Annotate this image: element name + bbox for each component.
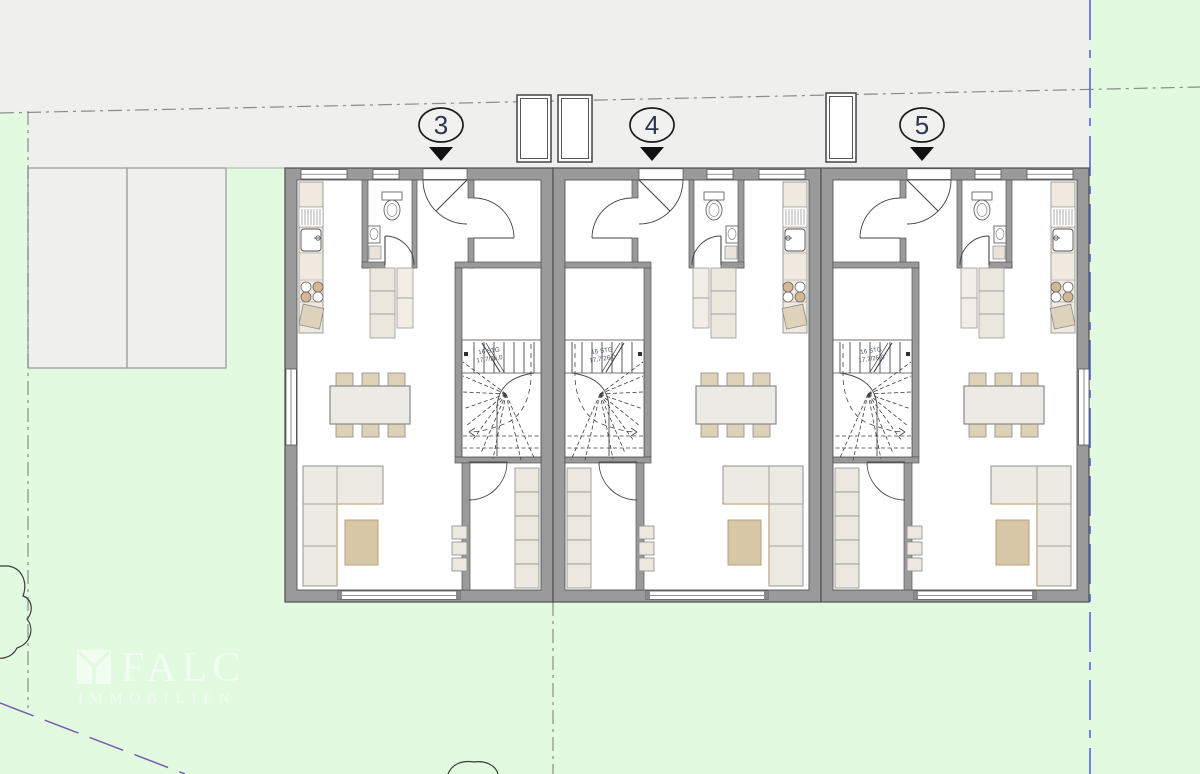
- unit-5-floorplan: [821, 168, 1089, 602]
- unit-3-side-window: [286, 369, 296, 445]
- parking-space-1: [28, 168, 127, 368]
- canopy-2: [558, 95, 592, 162]
- watermark-brand: FALC: [121, 645, 245, 691]
- floor-plan-canvas: 16 STG 17,7/26,0 16 STG 17,7/26,0 16 STG…: [0, 0, 1200, 774]
- unit-number: 3: [434, 110, 448, 140]
- site-plan-page: 16 STG 17,7/26,0 16 STG 17,7/26,0 16 STG…: [0, 0, 1200, 774]
- parking-space-2: [127, 168, 226, 368]
- unit-3-floorplan: [285, 168, 553, 602]
- canopy-1: [517, 95, 551, 162]
- unit-number: 4: [645, 110, 659, 140]
- unit-number: 5: [915, 110, 929, 140]
- watermark-subtitle: IMMOBILIEN: [78, 691, 237, 707]
- unit-4-floorplan: [553, 168, 821, 602]
- falc-logo-icon: [77, 650, 111, 684]
- watermark: FALC IMMOBILIEN: [77, 645, 245, 707]
- unit-5-side-window: [1079, 369, 1089, 445]
- parking-spaces: [28, 168, 226, 368]
- canopy-3: [826, 93, 856, 162]
